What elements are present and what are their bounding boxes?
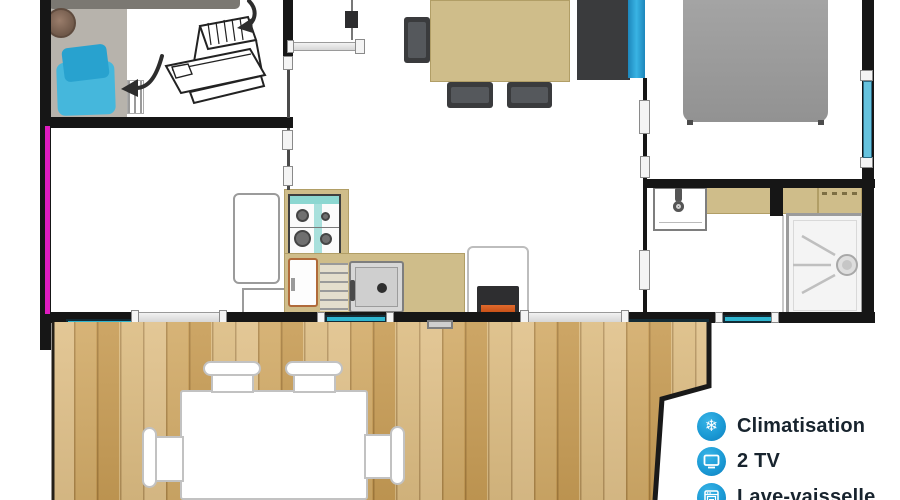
legend-item-climatisation: ❄ Climatisation xyxy=(697,411,865,441)
rotation-arrow-top xyxy=(237,1,255,33)
legend-label-tv: 2 TV xyxy=(737,450,780,473)
legend-label-climatisation: Climatisation xyxy=(737,415,865,438)
shower-spray-lines xyxy=(793,236,835,293)
rotation-arrow-left xyxy=(121,56,162,97)
legend-item-tv: 2 TV xyxy=(697,446,780,476)
snowflake-glyph: ❄ xyxy=(705,418,718,434)
legend-item-lave-vaisselle: Lave-vaisselle xyxy=(697,482,875,500)
dishwasher-icon xyxy=(697,483,726,500)
snowflake-icon: ❄ xyxy=(697,412,726,441)
legend-label-lave-vaisselle: Lave-vaisselle xyxy=(737,486,875,500)
floorplan-canvas: ❄ Climatisation 2 TV Lave-vaisselle xyxy=(0,0,900,500)
tv-icon xyxy=(697,447,726,476)
